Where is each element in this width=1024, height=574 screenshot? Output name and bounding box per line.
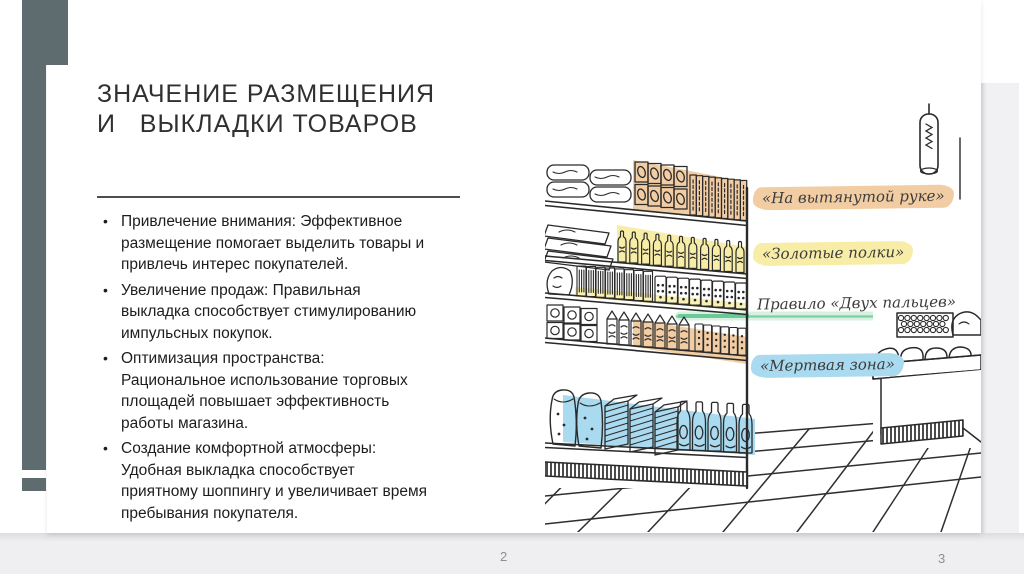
store-shelf-illustration: «На вытянутой руке» «Золотые полки» Прав… [545, 98, 981, 532]
title-divider [97, 196, 460, 198]
accent-bar-segment [22, 478, 46, 491]
page-title: ЗНАЧЕНИЕ РАЗМЕЩЕНИЯИ ВЫКЛАДКИ ТОВАРОВ [97, 79, 517, 139]
bullet-list: Привлечение внимания: Эффективное размещ… [97, 211, 429, 528]
page-number-next: 3 [938, 551, 945, 566]
label-arms-reach: «На вытянутой руке» [753, 185, 954, 211]
bullet-item: Создание комфортной атмосферы: Удобная в… [97, 438, 429, 524]
page-gap [981, 83, 1019, 533]
page-number-current: 2 [500, 549, 507, 564]
bullet-item: Привлечение внимания: Эффективное размещ… [97, 211, 429, 276]
viewer-bottom-band [0, 533, 1024, 574]
label-two-fingers-rule: Правило «Двух пальцев» [755, 291, 965, 317]
page-title-line1: ЗНАЧЕНИЕ РАЗМЕЩЕНИЯ [97, 80, 435, 108]
slide-card: ЗНАЧЕНИЕ РАЗМЕЩЕНИЯИ ВЫКЛАДКИ ТОВАРОВ Пр… [47, 0, 981, 533]
page-title-line2: И ВЫКЛАДКИ ТОВАРОВ [97, 110, 418, 138]
produce-stand [873, 310, 981, 448]
label-dead-zone: «Мертвая зона» [751, 353, 904, 378]
slide-viewer: { "slide": { "title_line1": "ЗНАЧЕНИЕ РА… [0, 0, 1024, 574]
accent-bar [22, 0, 46, 470]
bullet-item: Оптимизация пространства: Рациональное и… [97, 348, 429, 434]
label-golden-shelves: «Золотые полки» [753, 241, 914, 266]
bullet-item: Увеличение продаж: Правильная выкладка с… [97, 280, 429, 345]
